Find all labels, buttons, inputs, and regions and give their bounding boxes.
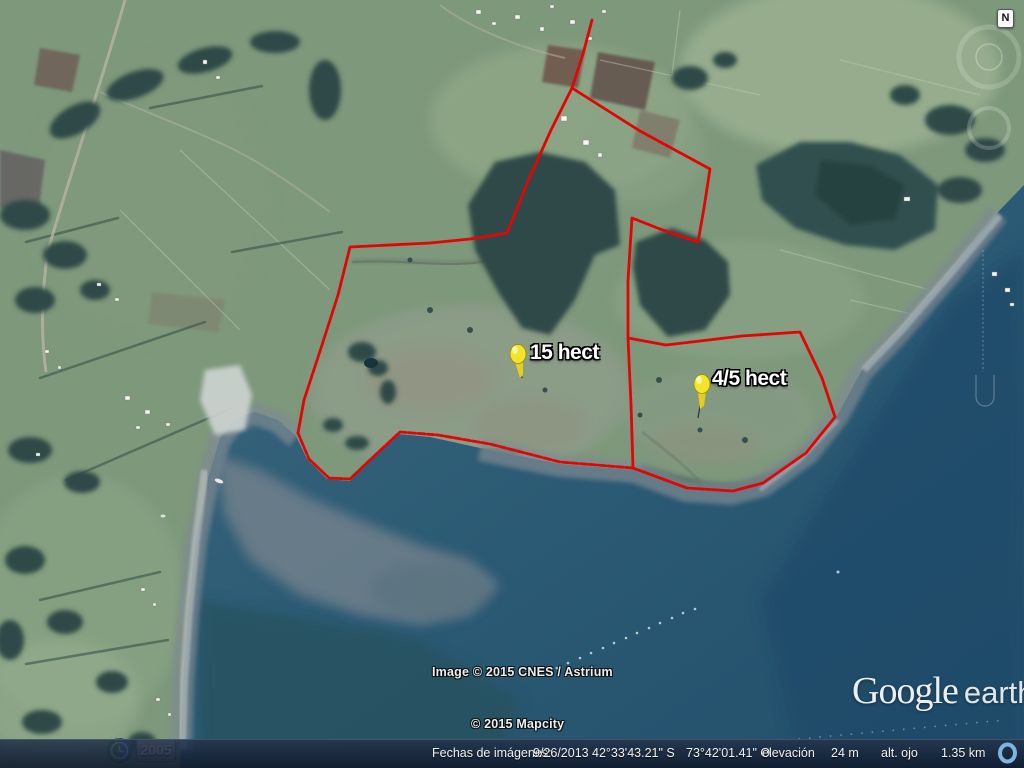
satellite-imagery [0,0,1024,768]
map-viewport[interactable] [0,0,1024,768]
elevation-value: 24 m [831,746,859,760]
eye-altitude-value: 1.35 km [941,746,985,760]
logo-brand-text: Google [852,670,958,712]
google-earth-logo: Googleearth [852,669,1024,713]
mapdata-attribution: © 2015 Mapcity [471,717,564,731]
imagery-date-value: 9/26/2013 [533,746,589,760]
parcel-label-45hect[interactable]: 4/5 hect [712,367,786,391]
imagery-attribution: Image © 2015 CNES / Astrium [432,665,613,679]
eye-altitude-icon [997,742,1018,764]
latitude-readout: 42°33'43.21" S [592,746,675,760]
eye-altitude-label: alt. ojo [881,746,918,760]
longitude-readout: 73°42'01.41" O [686,746,770,760]
google-earth-window: 15 hect 4/5 hect N Image © 2015 CNES / A… [0,0,1024,768]
north-up-button[interactable]: N [997,9,1014,28]
status-bar: Fechas de imágenes: 9/26/2013 42°33'43.2… [0,739,1024,768]
logo-product-text: earth [964,675,1024,710]
elevation-label: elevación [762,746,815,760]
parcel-label-15hect[interactable]: 15 hect [530,341,599,365]
